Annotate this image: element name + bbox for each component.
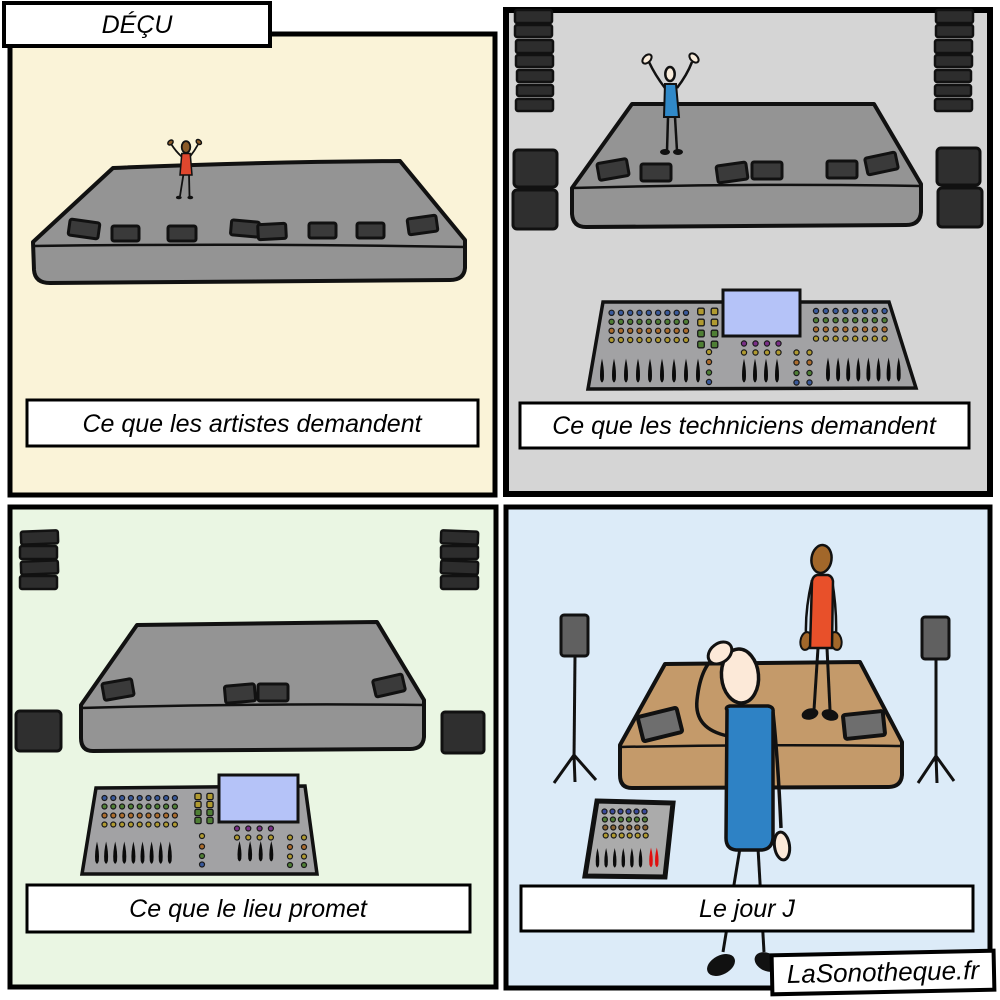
svg-text:DÉÇU: DÉÇU [102, 10, 174, 39]
svg-text:Le jour J: Le jour J [699, 895, 795, 923]
svg-text:Ce que les artistes demandent: Ce que les artistes demandent [82, 410, 422, 438]
svg-text:Ce que les techniciens demande: Ce que les techniciens demandent [552, 412, 937, 440]
svg-text:Ce que le lieu promet: Ce que le lieu promet [129, 895, 368, 923]
svg-text:LaSonotheque.fr: LaSonotheque.fr [787, 955, 981, 989]
